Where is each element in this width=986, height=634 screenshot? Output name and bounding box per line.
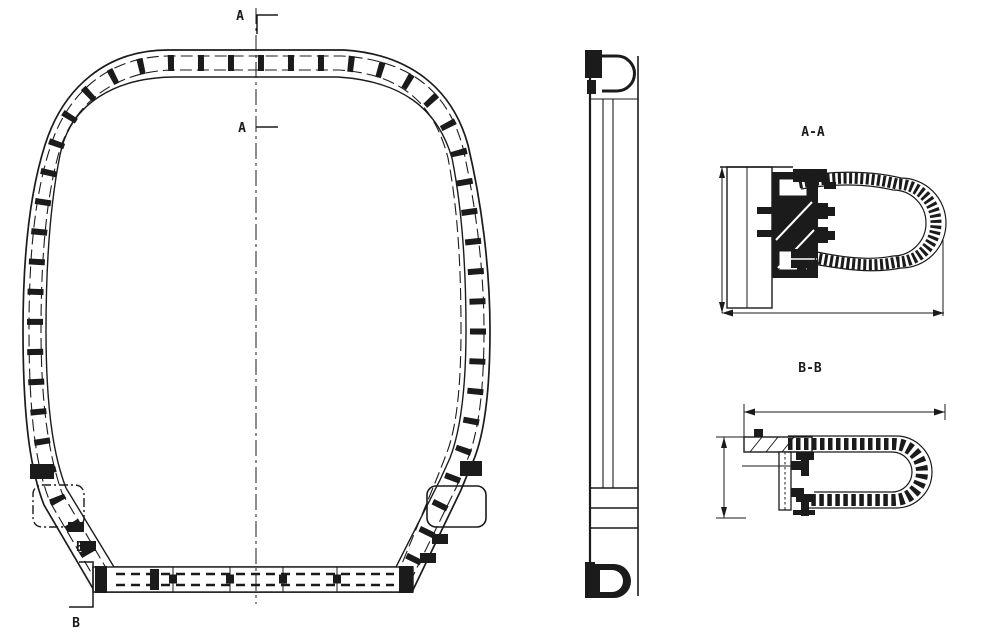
left-corner-hardware xyxy=(30,464,54,479)
aa-mounting-plate xyxy=(727,167,772,308)
section-label-a-lower: A xyxy=(238,121,246,136)
right-slope-bolt xyxy=(432,534,448,544)
section-label-a-upper: A xyxy=(236,9,244,24)
rail-bolt xyxy=(333,575,341,584)
aa-bolt-lower-nut xyxy=(828,231,835,240)
bb-bottom-bolt-washer xyxy=(793,510,815,515)
rail-bolt xyxy=(279,575,287,584)
drawing-background xyxy=(0,0,986,634)
side-bottom-end-cap xyxy=(585,562,631,598)
rail-bolt xyxy=(169,575,177,584)
bb-bracket-top-plate xyxy=(744,437,812,452)
right-slope-bolt-2 xyxy=(420,553,436,563)
aa-bolt-lower xyxy=(818,227,828,243)
bb-plate-stud xyxy=(754,429,763,437)
bottom-cap-bulb-hollow xyxy=(600,570,623,592)
top-cap-fastener xyxy=(587,80,596,94)
bb-bottom-bolt-head xyxy=(796,494,814,502)
aa-bolt-shaft-upper xyxy=(757,207,772,214)
bb-top-bolt-shaft xyxy=(801,460,809,476)
bottom-sill-rail xyxy=(93,567,413,592)
right-corner-hardware xyxy=(460,461,482,476)
top-cap-clamp-block xyxy=(585,50,602,78)
aa-bolt-shaft-lower xyxy=(757,230,772,237)
engineering-drawing-canvas: A A B B A-A xyxy=(0,0,986,634)
aa-seal-clamp-bolt xyxy=(797,268,806,278)
bb-top-bolt-head xyxy=(796,452,814,460)
bb-bracket-web xyxy=(779,452,791,510)
section-label-b-upper: B xyxy=(76,540,84,555)
rail-end-clamp-right xyxy=(399,566,413,593)
aa-bolt-upper xyxy=(818,203,828,219)
section-bb-title: B-B xyxy=(798,361,822,376)
rail-clamp-left xyxy=(150,569,159,590)
section-aa-title: A-A xyxy=(801,125,825,140)
door-seal-assembly-drawing: A A B B A-A xyxy=(0,0,986,634)
aa-bolt-upper-nut xyxy=(828,207,835,216)
rail-bolt xyxy=(226,575,234,584)
section-label-b-lower: B xyxy=(72,616,80,631)
rail-end-clamp-left xyxy=(95,566,107,593)
